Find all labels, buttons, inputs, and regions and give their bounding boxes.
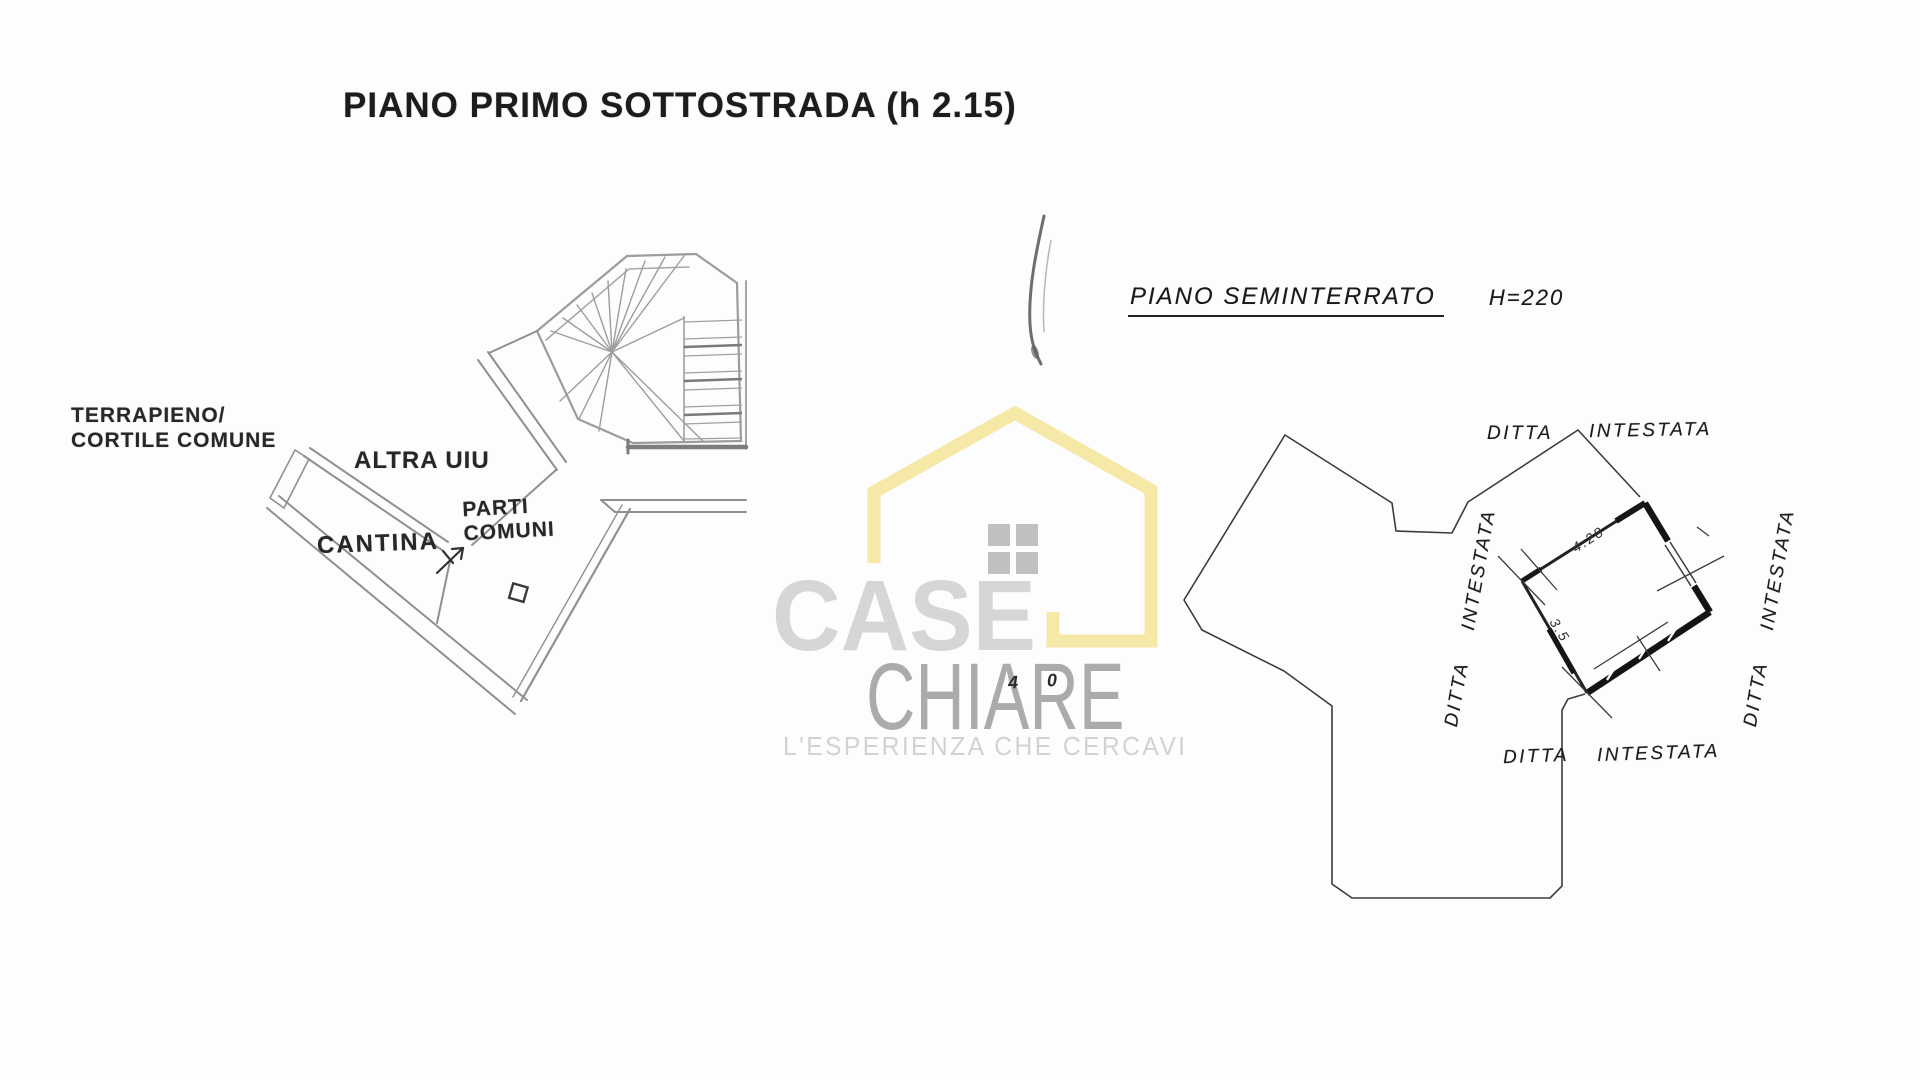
pillar-square-symbol xyxy=(509,583,528,602)
scanned-floorplan-page: TERRAPIENO/ CORTILE COMUNE ALTRA UIU CAN… xyxy=(0,0,1920,1080)
label-terrapieno-line2: CORTILE COMUNE xyxy=(71,428,276,453)
stray-handwritten-mark: 4 0 xyxy=(1007,669,1069,693)
door-arrow-icon xyxy=(437,548,463,573)
subject-unit-walls xyxy=(1522,503,1710,693)
right-plan-height-note: H=220 xyxy=(1489,285,1564,311)
watermark-tagline: L'ESPERIENZA CHE CERCAVI xyxy=(783,731,1187,762)
right-plan-title-text: PIANO SEMINTERRATO xyxy=(1128,283,1444,317)
right-plan-title: PIANO SEMINTERRATO H=220 xyxy=(1128,283,1564,317)
label-parti-comuni: PARTI COMUNI xyxy=(462,494,556,547)
right-floorplan-drawing: 4.28 3.5 xyxy=(1170,400,1840,920)
pen-mark-squiggle xyxy=(1000,200,1080,380)
stair-winder-treads xyxy=(551,256,703,441)
owner-label-bottom-ditta: DITTA xyxy=(1503,745,1570,769)
label-parti-line2: COMUNI xyxy=(463,518,555,547)
owner-label-top-ditta: DITTA xyxy=(1487,423,1553,445)
staircase-enclosure xyxy=(537,254,746,449)
owner-label-bottom-intestata: INTESTATA xyxy=(1597,741,1720,767)
page-title: PIANO PRIMO SOTTOSTRADA (h 2.15) xyxy=(343,86,1017,126)
cantina-walls xyxy=(267,448,630,714)
label-altra-uiu: ALTRA UIU xyxy=(354,447,490,475)
dimension-top-edge: 4.28 xyxy=(1569,523,1607,556)
owner-label-top-intestata: INTESTATA xyxy=(1589,419,1712,443)
label-terrapieno-cortile: TERRAPIENO/ CORTILE COMUNE xyxy=(71,403,276,453)
stair-straight-treads xyxy=(684,316,742,441)
label-cantina: CANTINA xyxy=(317,528,440,560)
left-floorplan-drawing xyxy=(255,210,800,735)
label-terrapieno-line1: TERRAPIENO/ xyxy=(71,403,276,428)
